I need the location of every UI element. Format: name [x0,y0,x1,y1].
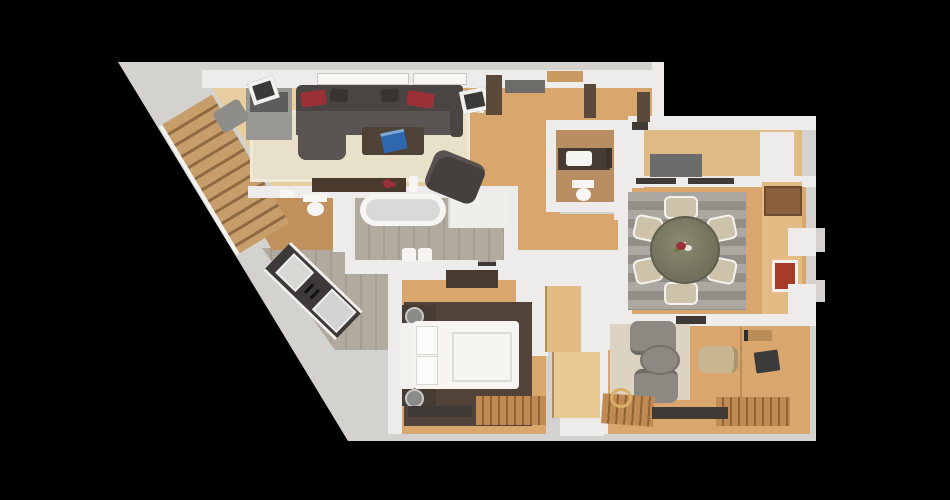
floor-plan [0,0,950,500]
office-chair [698,346,738,373]
study-ottoman [640,345,680,375]
entry-dark-wall [584,84,596,118]
sofa-chaise [298,133,346,160]
wc-shelf [606,148,612,168]
wall-wc-left [546,120,556,212]
wc-sink [566,151,592,166]
flowers [383,179,392,188]
bathtub-faucet [368,207,375,214]
white-closet [760,132,797,176]
dark-runner [652,407,728,419]
bath-bin [418,248,432,262]
kitchen-handle [310,289,320,300]
door-threshold [688,178,734,184]
dark-pillow [329,88,348,103]
entry-shelf [505,80,545,93]
powder-toilet-bowl [307,202,324,216]
entry-dark-wall [637,92,650,122]
bed-headboard [400,323,414,389]
wall-wc-bottom [546,202,632,212]
bath-bin [402,248,416,262]
dining-chair [664,282,698,305]
bathtub-inner [366,199,440,221]
dark-unit [650,154,702,177]
gold-ring [610,388,632,408]
console-table [312,178,406,192]
wall-cabinet-white [788,284,816,314]
door-threshold [676,316,706,324]
door-threshold [636,178,676,184]
powder-toilet-tank [303,194,327,202]
hallway-floor-south [546,214,624,254]
bed-duvet-stitch [452,332,512,382]
corner-dresser [764,186,802,216]
wall-entry-right [652,62,664,120]
window [317,73,409,85]
wc-toilet-tank [572,180,594,188]
dining-table [650,216,720,284]
dark-pillow [380,88,399,103]
closet-lower [552,352,600,418]
wc-toilet-bowl [576,188,591,201]
entry-dark-wall [486,75,502,115]
candle [409,176,418,192]
bed-pillow [416,356,438,385]
bed-pillow [416,326,438,355]
wall-cabinet-white [788,228,816,256]
desk-shelf-items [744,330,772,341]
window [413,73,467,85]
dark-runner [408,406,472,417]
wall-walkin-top [628,116,816,130]
wall-bump [816,280,825,302]
closet-upper [545,286,581,352]
centerpiece-flowers [676,242,686,250]
door-lintel [547,71,583,82]
powder-sink [280,190,294,198]
wall-bump [816,228,825,252]
wall-powder-right [333,194,345,252]
desk-laptop [754,349,781,373]
bedroom-tv-panel [446,270,498,288]
slatted-mat [476,396,546,425]
